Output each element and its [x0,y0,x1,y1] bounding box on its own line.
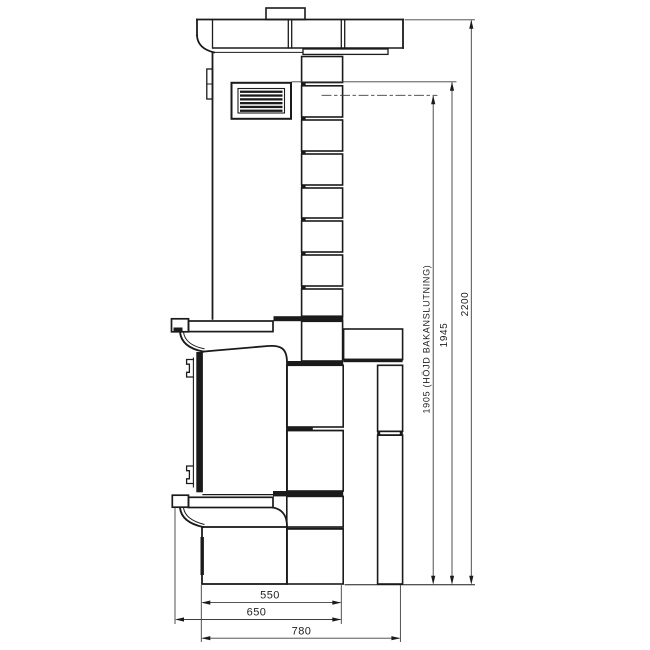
mantel-shelf [172,316,344,332]
bench-column [273,361,343,584]
door-hinge-top [187,360,194,378]
tower-body [207,52,213,318]
dim-label-depth-650: 650 [247,607,267,618]
door-hinge-bottom [187,466,194,484]
chimney-tile [302,120,343,151]
plinth [202,527,287,584]
stove-line-drawing [0,0,650,650]
stove-body [203,346,287,495]
chimney-tile [302,221,343,252]
base-shelf [189,497,274,507]
cap-ledge [303,49,388,54]
dim-label-depth-550: 550 [260,590,280,601]
rear-connection-box [344,329,403,362]
door-slab [196,352,203,492]
base-shelf-nose [172,495,188,507]
dim-label-depth-780: 780 [292,626,312,637]
chimney-tile [302,57,343,83]
chimney-tile [302,154,343,185]
base-cove-molding [180,508,203,527]
vent-grille [232,83,292,119]
base-assembly [172,495,287,584]
technical-drawing-canvas: 1905 (HÖJD BAKANSLUTNING) 1945 2200 550 … [0,0,650,650]
top-cap [197,20,403,53]
chimney-tile [302,188,343,218]
chimney-tile [302,321,343,361]
rear-panel [377,365,403,584]
chimney-tile [302,86,343,117]
chimney-tile [302,255,343,286]
grille-slats [240,91,283,112]
flue-stub [266,8,305,20]
chimney-tile [302,289,343,316]
dim-label-height-1945: 1945 [440,323,450,348]
dim-label-total-height: 2200 [461,291,471,316]
stove-door [187,352,203,492]
plinth-door-edge [201,537,204,575]
chimney-tile-column [301,57,343,362]
dim-label-height-back-connection: 1905 (HÖJD BAKANSLUTNING) [423,264,432,413]
mantel-cove-molding [180,332,204,352]
